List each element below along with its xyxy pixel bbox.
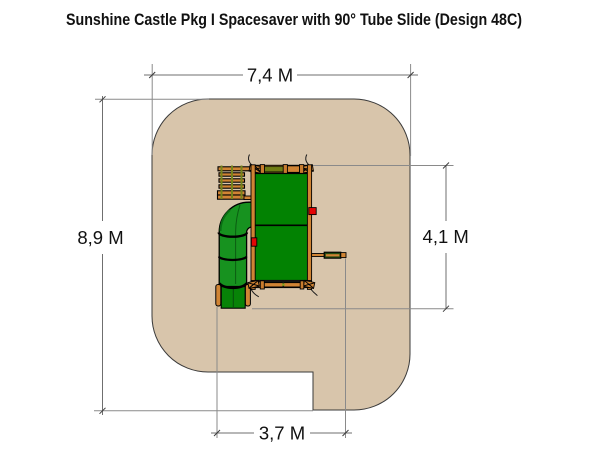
- svg-text:4,1 M: 4,1 M: [423, 226, 469, 247]
- svg-text:7,4 M: 7,4 M: [247, 65, 293, 86]
- svg-text:Sunshine Castle Pkg I Spacesav: Sunshine Castle Pkg I Spacesaver with 90…: [66, 11, 522, 29]
- svg-text:3,7 M: 3,7 M: [259, 423, 305, 444]
- svg-text:8,9 M: 8,9 M: [77, 227, 123, 248]
